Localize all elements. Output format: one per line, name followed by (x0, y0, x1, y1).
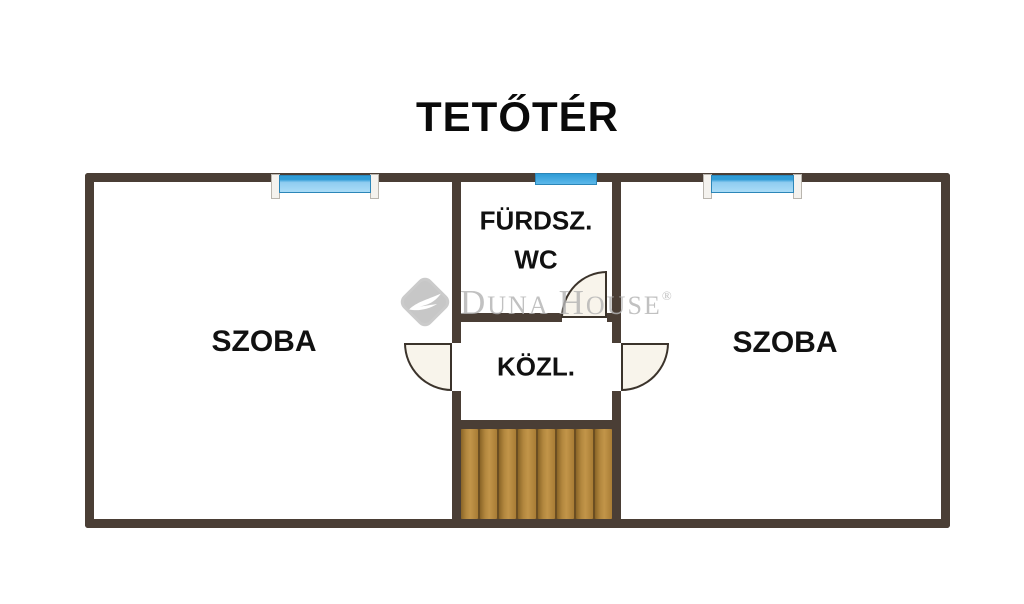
right-window-frame (793, 174, 802, 199)
stair-step (461, 429, 478, 519)
bathroom-bottom-wall-stub (607, 313, 621, 322)
floorplan-image: TETŐTÉR SZOBA SZOBA FÜRDSZ. WC KÖZL. D U… (0, 0, 1024, 604)
stair-step (576, 429, 593, 519)
stairwell-left-wall (452, 391, 461, 528)
stairwell-right-wall (612, 391, 621, 528)
stairwell-top-wall (452, 420, 621, 429)
registered-trademark-icon: ® (662, 289, 672, 302)
right-room-label: SZOBA (733, 326, 838, 360)
left-room-label: SZOBA (212, 325, 317, 359)
hallway-label: KÖZL. (497, 352, 575, 383)
bathroom-door (561, 271, 607, 318)
left-room-door (404, 343, 452, 391)
stair-step (480, 429, 497, 519)
stair-step (518, 429, 535, 519)
stair-step (499, 429, 516, 519)
middle-window (535, 173, 597, 185)
left-window-frame (370, 174, 379, 199)
staircase (461, 429, 612, 519)
duna-house-diamond-logo-icon (397, 274, 453, 330)
outer-wall-bottom (85, 519, 950, 528)
stair-step (557, 429, 574, 519)
outer-wall-left (85, 173, 94, 528)
outer-wall-right (941, 173, 950, 528)
bathroom-bottom-wall (452, 313, 562, 322)
bathroom-label-line1: FÜRDSZ. (480, 206, 593, 237)
right-room-door (621, 343, 669, 391)
bathroom-label-line2: WC (514, 245, 557, 276)
left-window (279, 175, 371, 193)
stair-step (595, 429, 612, 519)
outer-wall-top (85, 173, 950, 182)
page-title: TETŐTÉR (85, 93, 950, 141)
right-window (711, 175, 794, 193)
stair-step (538, 429, 555, 519)
